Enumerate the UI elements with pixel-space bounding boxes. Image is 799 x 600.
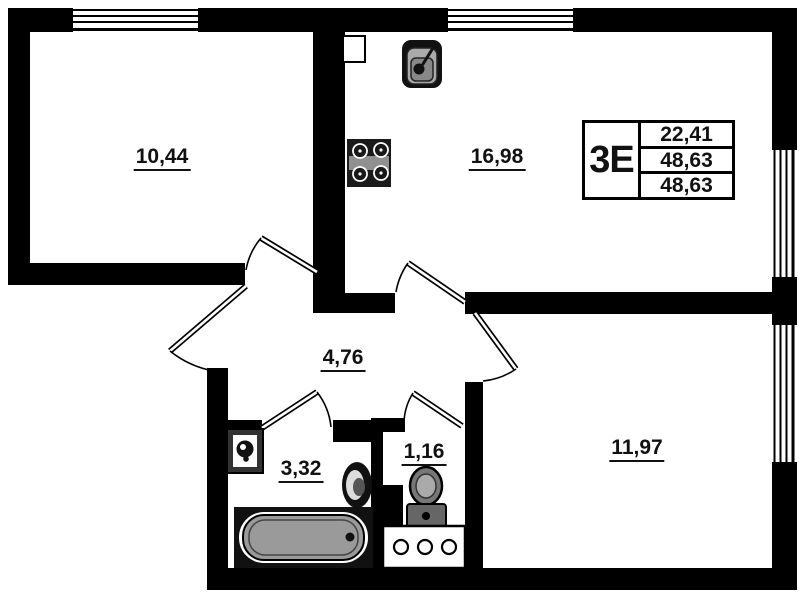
bedroom2-area-label: 11,97 [609, 436, 664, 460]
unit-overall-area-value: 48,63 [641, 174, 732, 197]
washing-machine-icon [227, 429, 263, 473]
kitchen-sink-icon [402, 40, 442, 88]
entrance-door-icon [170, 286, 246, 371]
bedroom2-area-value: 11,97 [609, 436, 664, 462]
hallway-area-value: 4,76 [321, 346, 366, 372]
bathroom-door-icon [262, 392, 331, 428]
toilet-icon [407, 467, 446, 528]
bedroom-door-icon [246, 238, 317, 272]
bathtub-icon [234, 507, 373, 568]
bedroom-area-label: 10,44 [134, 145, 191, 169]
window-icon-living-right [772, 150, 797, 277]
wc-door-icon [404, 393, 462, 426]
wc-area-value: 1,16 [402, 440, 447, 466]
floor-plan-drawing [0, 0, 799, 600]
wc-area-label: 1,16 [402, 440, 447, 464]
kitchen-living-area-label: 16,98 [469, 145, 526, 169]
window-icon-living [448, 8, 573, 32]
window-icon-bedroom2 [772, 325, 797, 462]
stove-icon [347, 139, 391, 187]
floor-plan: 10,44 16,98 4,76 3,32 1,16 11,97 3E 22,4… [0, 0, 799, 600]
unit-info-table: 3E 22,41 48,63 48,63 [582, 120, 735, 200]
unit-type-cell: 3E [585, 123, 641, 197]
walls [8, 8, 797, 590]
bedroom-area-value: 10,44 [134, 145, 191, 171]
hallway-area-label: 4,76 [321, 346, 366, 370]
window-icon-bedroom [73, 8, 198, 32]
vanity-cabinet-icon [383, 526, 465, 568]
bedroom2-door-icon [475, 313, 516, 381]
living-room-door-icon [396, 263, 465, 302]
bathroom-area-value: 3,32 [279, 457, 324, 483]
unit-living-area-value: 22,41 [641, 123, 732, 149]
bathroom-sink-icon [342, 462, 372, 508]
bathroom-area-label: 3,32 [279, 457, 324, 481]
vent-niche [343, 36, 365, 62]
unit-total-area-value: 48,63 [641, 149, 732, 175]
unit-areas-column: 22,41 48,63 48,63 [641, 123, 732, 197]
kitchen-living-area-value: 16,98 [469, 145, 526, 171]
